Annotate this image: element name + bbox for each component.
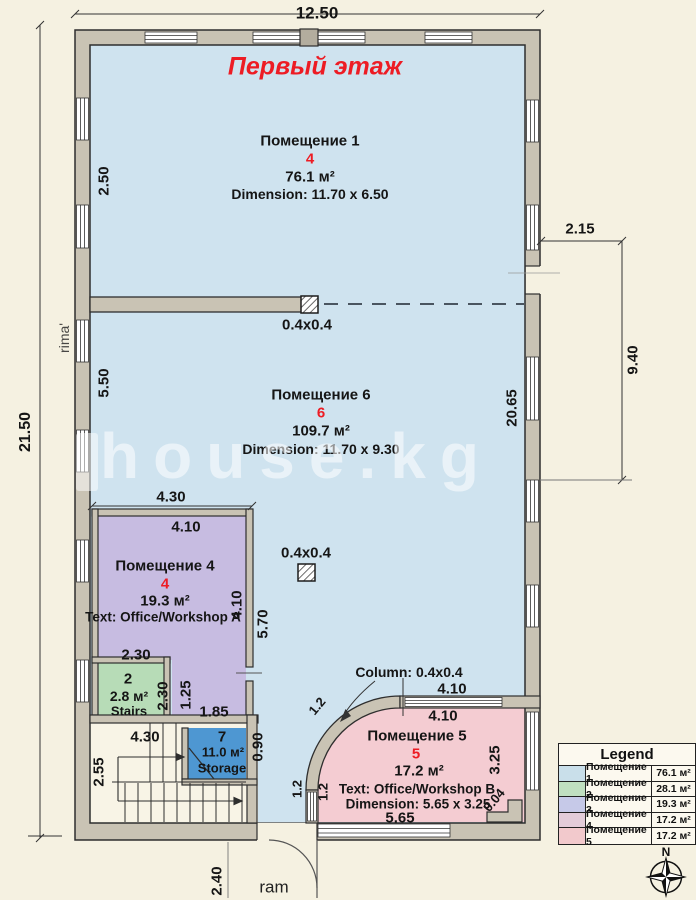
room-7-number: 7 — [218, 730, 226, 745]
dim-right-inner: 20.65 — [505, 389, 520, 427]
legend-table: Legend Помещение 1 76.1 м² Помещение 2 2… — [558, 743, 696, 845]
room-4-number: 4 — [161, 577, 169, 592]
room-5-name: Помещение 5 — [367, 729, 466, 744]
legend-swatch-4 — [559, 813, 586, 828]
dim-r2-height: 2.30 — [156, 681, 171, 710]
top-wall-pillar — [300, 29, 318, 46]
legend-area-4: 17.2 м² — [652, 813, 695, 828]
room-1-number: 4 — [306, 152, 314, 167]
dim-ext-width: 2.15 — [565, 222, 594, 237]
floor-title: Первый этаж — [228, 55, 402, 80]
room-7-area: 11.0 м² — [202, 746, 244, 759]
room-7-label: Storage — [198, 762, 246, 775]
dim-r5-in-top: 4.10 — [428, 709, 457, 724]
dim-left-mid: 5.50 — [97, 368, 112, 397]
legend-name-5: Помещение 5 — [586, 828, 652, 844]
legend-area-5: 17.2 м² — [652, 828, 695, 844]
dim-left-top: 2.50 — [97, 166, 112, 195]
room-5-top-wall — [400, 696, 540, 708]
room-2-number: 2 — [124, 672, 132, 687]
room-2-area: 2.8 м² — [110, 689, 148, 703]
watermark-side-text: rima' — [57, 323, 71, 353]
room-1-dimension: Dimension: 11.70 x 6.50 — [231, 187, 388, 201]
dim-ext-height: 9.40 — [626, 345, 641, 374]
room-4-area: 19.3 м² — [140, 594, 189, 609]
compass-north-label: N — [662, 846, 671, 858]
room-5-dimension: Dimension: 5.65 x 3.25 — [346, 797, 491, 811]
room-4-text: Text: Office/Workshop A — [85, 610, 241, 624]
room-6-name: Помещение 6 — [271, 388, 370, 403]
room-5-area: 17.2 м² — [394, 764, 443, 779]
legend-swatch-3 — [559, 797, 586, 812]
dim-arc-left-a: 1.2 — [291, 780, 304, 798]
column-b-size-label: 0.4x0.4 — [281, 546, 331, 561]
legend-row: Помещение 5 17.2 м² — [559, 828, 695, 844]
legend-area-2: 28.1 м² — [652, 782, 695, 797]
legend-swatch-1 — [559, 766, 586, 781]
dim-arc-left-b: 1.2 — [317, 783, 330, 801]
watermark-brand: house.kg — [100, 424, 493, 488]
dim-r7-right: 0.90 — [251, 732, 266, 761]
column-annotation: Column: 0.4x0.4 — [355, 665, 462, 679]
watermark-logo — [76, 433, 98, 491]
dim-ext-bottom: 1.85 — [199, 705, 228, 720]
dim-total-height: 21.50 — [18, 412, 34, 452]
room-4-name: Помещение 4 — [115, 559, 214, 574]
room-5-text: Text: Office/Workshop B — [339, 782, 495, 796]
dim-r4-out-right: 5.70 — [256, 609, 271, 638]
dim-stair-height: 2.55 — [92, 757, 107, 786]
column-b — [298, 564, 315, 581]
dim-r4-low-width: 2.30 — [121, 648, 150, 663]
dim-r5-bottom: 5.65 — [385, 811, 414, 826]
dim-r5-right: 3.25 — [488, 745, 503, 774]
watermark-bottom-text: ram — [259, 879, 288, 896]
room-1-name: Помещение 1 — [260, 134, 359, 149]
legend-area-3: 19.3 м² — [652, 797, 695, 812]
column-a-size-label: 0.4x0.4 — [282, 318, 332, 333]
legend-swatch-2 — [559, 782, 586, 797]
dim-door-bottom: 2.40 — [210, 866, 225, 895]
room-5-number: 5 — [412, 747, 420, 762]
dim-r4-in-top: 4.10 — [171, 520, 200, 535]
dim-stair-width: 4.30 — [130, 730, 159, 745]
floor-plan: Первый этаж Помещение 1 4 76.1 м² Dimens… — [0, 0, 696, 900]
partition-wall-room1-room6 — [90, 297, 302, 312]
legend-swatch-5 — [559, 828, 586, 844]
dim-r5-out-top: 4.10 — [437, 682, 466, 697]
legend-area-1: 76.1 м² — [652, 766, 695, 781]
dim-ext-left: 1.25 — [179, 680, 194, 709]
column-a — [301, 296, 318, 313]
room-1-area: 76.1 м² — [285, 170, 334, 185]
room-2-label: Stairs — [111, 705, 147, 718]
dim-r4-in-right: 4.10 — [230, 590, 245, 619]
room-6-number: 6 — [317, 406, 325, 421]
dim-total-width: 12.50 — [296, 5, 339, 22]
compass-rose — [647, 858, 685, 896]
